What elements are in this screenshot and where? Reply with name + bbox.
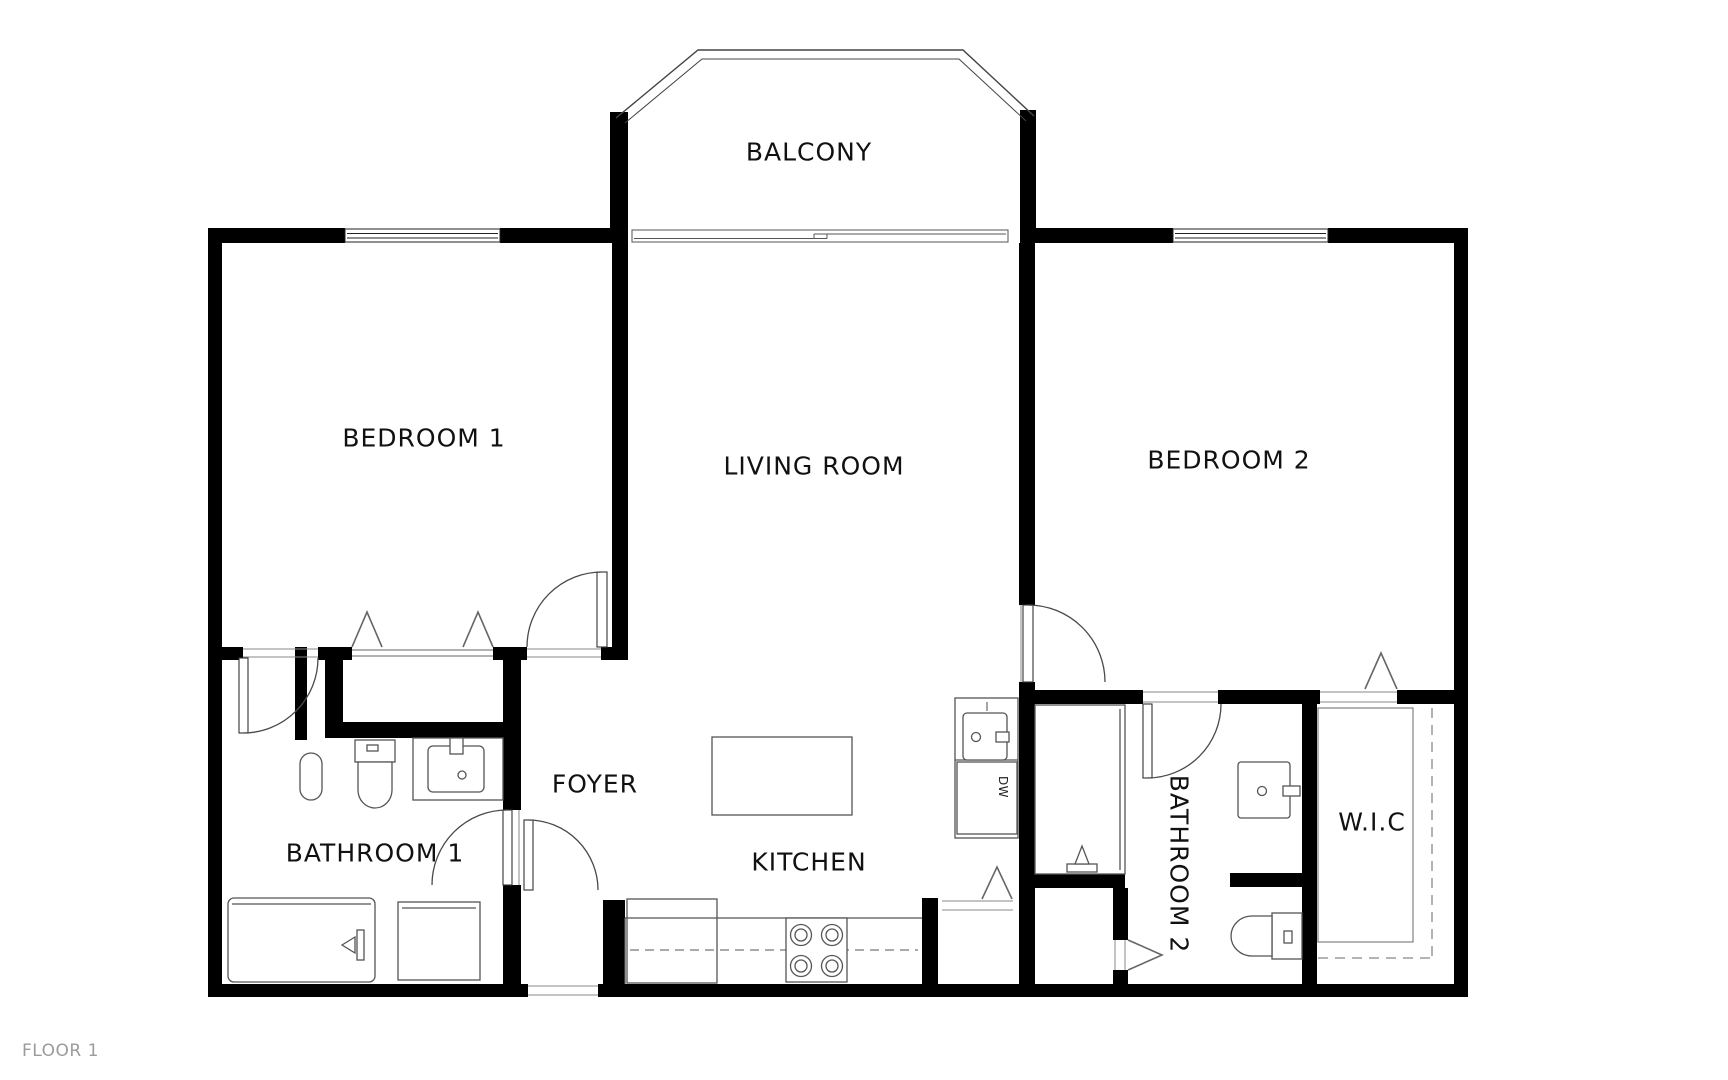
closet1-bifold-left (352, 612, 382, 647)
toilet1-icon (355, 740, 395, 808)
wall-top-a (208, 228, 345, 243)
label-wic: W.I.C (1338, 808, 1406, 837)
wall-closet2-right-b (1113, 970, 1128, 984)
kitchen-counter-right (955, 698, 1018, 838)
bathtub2-icon (1035, 705, 1125, 874)
wall-closet1-bottom (325, 722, 521, 738)
wall-bedroom1-bottom-d (601, 647, 628, 660)
label-bathroom1: BATHROOM 1 (286, 839, 465, 868)
label-bedroom2: BEDROOM 2 (1147, 446, 1310, 475)
door-bathroom2 (1143, 704, 1221, 778)
wall-closet2-right-a (1113, 888, 1128, 940)
bathtub1-icon (228, 898, 375, 982)
label-dishwasher: DW (996, 776, 1010, 798)
closet1-bifold-right (463, 612, 493, 647)
vanity-sink1-icon (413, 738, 503, 800)
wall-foyer-lower (503, 885, 521, 997)
kitchen-island (712, 737, 852, 815)
wall-outer-right (1454, 228, 1468, 997)
wall-bathroom2-wic (1302, 704, 1317, 984)
wall-bottom-a (208, 984, 528, 997)
stove-icon (786, 918, 847, 982)
label-balcony: BALCONY (746, 138, 872, 167)
floor-plan: BALCONY BEDROOM 1 LIVING ROOM BEDROOM 2 … (0, 0, 1728, 1080)
fridge-icon (627, 899, 717, 983)
wall-bedroom2-bottom-b (1218, 690, 1320, 704)
wall-bedroom2-bottom-a (1035, 690, 1143, 704)
wall-foyer-upper (503, 647, 521, 810)
window-bedroom1 (345, 229, 500, 242)
window-bedroom2 (1173, 229, 1328, 242)
wall-top-c (1020, 228, 1173, 243)
label-living-room: LIVING ROOM (723, 452, 904, 481)
balcony-pillar-left (610, 112, 628, 243)
bathroom2-closet-bifold (1128, 940, 1162, 970)
door-bedroom2 (1023, 605, 1105, 682)
wall-living-bedroom2 (1019, 243, 1035, 605)
wall-pantry-left (922, 898, 938, 997)
toilet2-icon (1231, 913, 1302, 959)
pedestal-sink-icon (300, 753, 322, 800)
wall-outer-left (208, 228, 222, 997)
vanity-sink2-icon (1238, 762, 1300, 818)
wall-bathroom2-stub (1230, 873, 1302, 887)
door-bedroom1 (527, 572, 607, 647)
balcony-sliding-door (632, 230, 1008, 242)
wall-bedroom2-bottom-c (1397, 690, 1454, 704)
label-bathroom2: BATHROOM 2 (1165, 775, 1194, 954)
label-kitchen: KITCHEN (751, 848, 866, 877)
balcony-pillar-right (1020, 110, 1036, 243)
wall-corridor (1019, 682, 1035, 997)
label-bedroom1: BEDROOM 1 (342, 424, 505, 453)
shower1-icon (398, 902, 480, 980)
wall-top-b (500, 228, 628, 243)
wall-top-d (1328, 228, 1468, 243)
wic-bifold (1365, 653, 1397, 689)
floor-indicator: FLOOR 1 (22, 1041, 99, 1061)
wall-kitchen-stub (603, 900, 625, 997)
label-foyer: FOYER (552, 770, 638, 799)
wall-tub2-bottom (1033, 874, 1125, 888)
wall-bathroom1-stub (295, 647, 307, 740)
pantry-bifold (982, 867, 1012, 899)
balcony-railing (616, 50, 1034, 123)
wall-bedroom1-living (612, 243, 628, 660)
door-entry (524, 820, 598, 890)
